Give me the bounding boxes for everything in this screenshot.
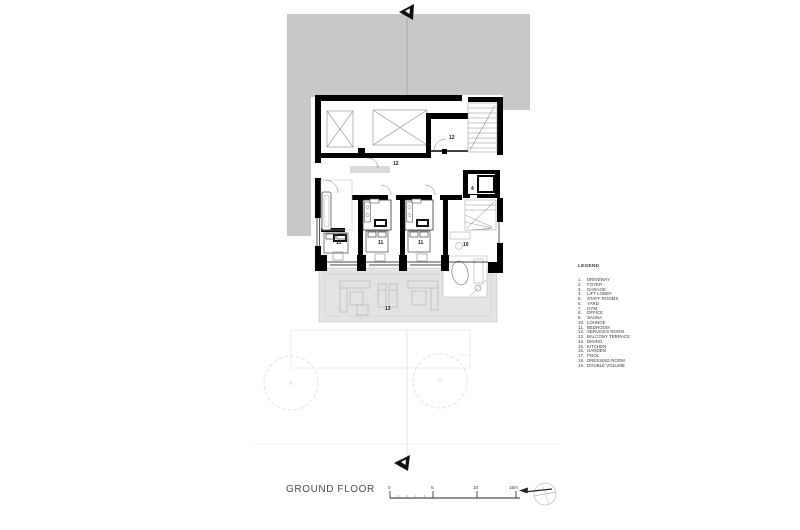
room-label-bedroom1: 11 — [336, 240, 342, 246]
site-outline — [291, 330, 470, 368]
room-label-bedroom2: 11 — [378, 240, 384, 246]
north-arrow-icon — [519, 483, 556, 505]
lift — [463, 170, 500, 198]
room-label-balcony: 13 — [385, 306, 391, 312]
skylight-voids — [327, 110, 427, 147]
legend-item: 19.DOUBLE VOLUME — [578, 364, 688, 369]
room-label-services-upper: 12 — [449, 135, 455, 141]
legend: LEGEND 1.DRIVEWAY 2.FOYER 3.GARAGE 4.LIF… — [578, 264, 688, 368]
tree-right — [413, 354, 467, 408]
doormat — [350, 166, 390, 173]
scale-label-10: 10 — [473, 485, 479, 490]
room-label-lounge: 10 — [463, 242, 469, 248]
room-label-services: 12 — [393, 161, 399, 167]
room-label-lift: 4 — [471, 186, 474, 192]
column — [358, 148, 365, 153]
staircase-upper — [468, 103, 497, 152]
legend-heading: LEGEND — [578, 264, 688, 269]
room-label-bedroom3: 11 — [418, 240, 424, 246]
scale-label-5: 5 — [431, 485, 434, 490]
scale-bar: 0 5 10 15m — [388, 485, 520, 498]
scale-label-0: 0 — [388, 485, 391, 490]
scale-label-15m: 15m — [509, 485, 518, 490]
staircase-mid — [465, 200, 496, 230]
drawing-title: GROUND FLOOR — [286, 484, 375, 495]
section-marker-bottom — [255, 330, 560, 471]
